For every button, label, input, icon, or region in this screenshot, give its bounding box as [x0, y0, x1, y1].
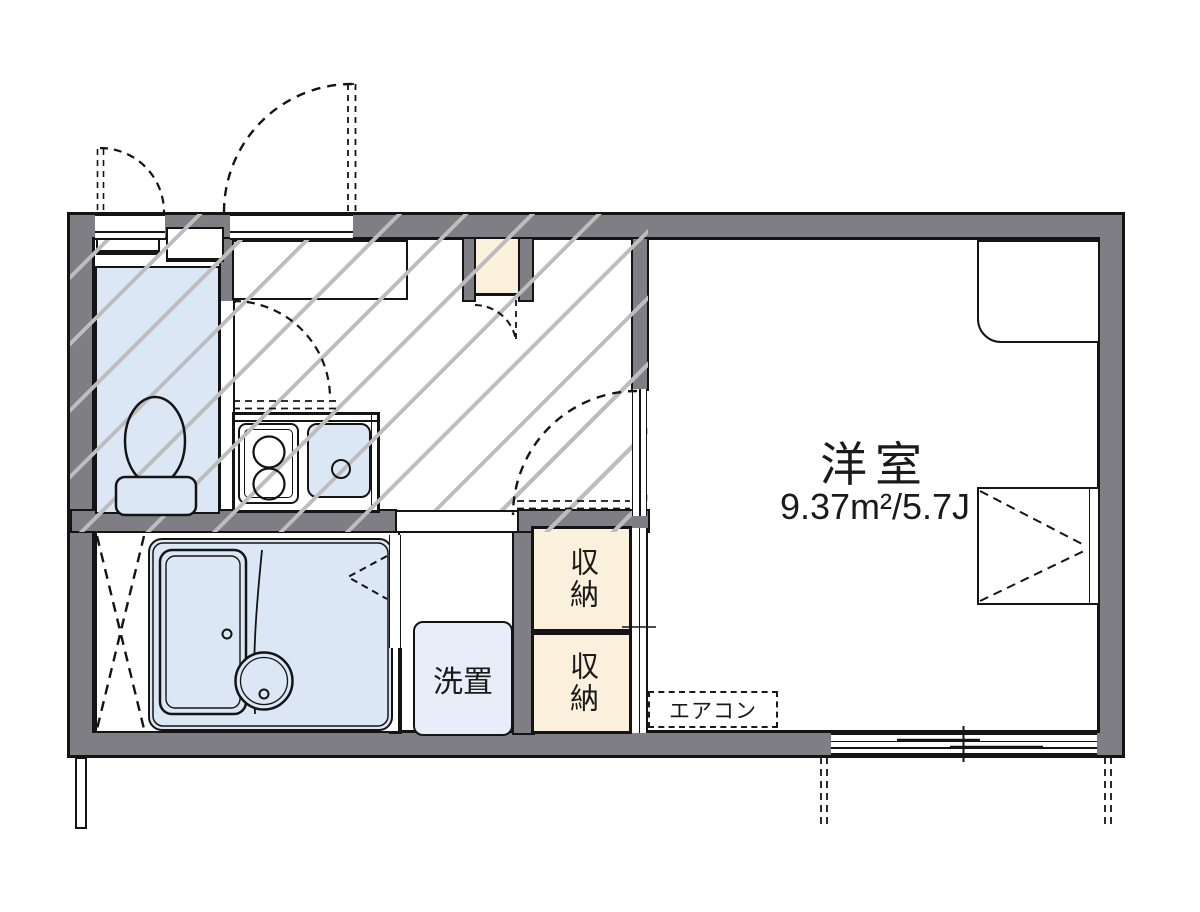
- toilet-window-line: [95, 231, 165, 233]
- main-room-window: [831, 733, 1097, 755]
- main-room-area: 9.37m²/5.7J: [700, 486, 1050, 528]
- air-conditioner-box: エアコン: [648, 691, 778, 728]
- storage-lower-label: 収納: [561, 651, 603, 715]
- main-room-closet-line: [1089, 489, 1091, 603]
- air-conditioner-label: エアコン: [669, 695, 757, 725]
- balcony-dash-left: [821, 757, 827, 826]
- washer-space: 洗置: [413, 621, 513, 736]
- entrance-door-leaf: [348, 84, 356, 213]
- passage-opening: [397, 510, 517, 533]
- toilet-window-arc: [100, 148, 164, 212]
- washer-space-label: 洗置: [433, 657, 493, 701]
- main-room-name: 洋室: [700, 426, 1050, 495]
- unit-bath: [148, 538, 393, 731]
- floor-hatch-overlay: [70, 214, 648, 532]
- main-room-counter: [977, 240, 1100, 343]
- bath-door-frame: [389, 535, 401, 648]
- main-room-door-frame: [632, 389, 647, 516]
- storage-closet-lower: 収納: [531, 632, 632, 734]
- main-room-door-frame-line: [639, 389, 641, 516]
- storage-door-track: [630, 528, 648, 733]
- window-rail-upper: [831, 741, 1097, 743]
- toilet-window-leaf: [98, 149, 104, 213]
- storage-upper-label: 収納: [561, 547, 603, 611]
- entrance-door-arc: [224, 84, 352, 212]
- window-rail-lower: [831, 747, 1097, 749]
- balcony-dash-right: [1105, 757, 1111, 826]
- storage-door-track-line: [639, 528, 641, 733]
- toilet-window-opening: [95, 214, 165, 240]
- entrance-opening-line: [230, 231, 353, 233]
- floorplan-canvas: 洗置 収納 収納 エアコン: [0, 0, 1200, 912]
- balcony-partition-left: [75, 757, 87, 829]
- storage-closet-upper: 収納: [531, 526, 632, 632]
- entrance-opening: [230, 214, 353, 240]
